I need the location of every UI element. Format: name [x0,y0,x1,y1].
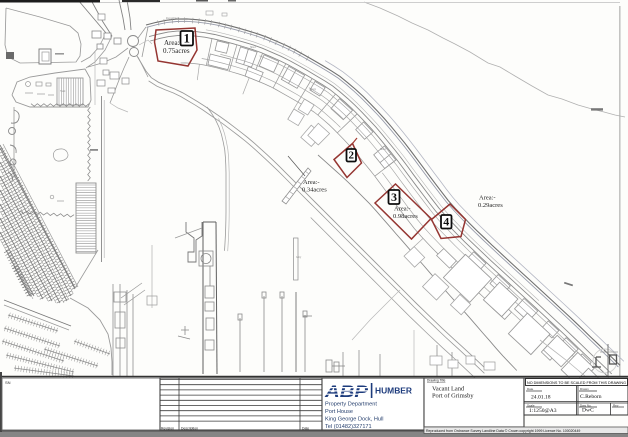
svg-text:Reproduced from Ordnance Surve: Reproduced from Ordnance Survey Landline… [426,429,580,433]
svg-text:2: 2 [349,150,355,162]
svg-text:Jetty: Jetty [296,256,302,259]
svg-text:Date: Date [527,387,534,391]
svg-text:Drawn: Drawn [580,387,589,391]
svg-text:Area:-: Area:- [164,39,183,47]
svg-text:Shed: Shed [250,46,256,49]
svg-text:Vacant Land: Vacant Land [432,386,465,393]
svg-text:4: 4 [443,215,449,229]
svg-text:Tel (01482)327171: Tel (01482)327171 [325,424,372,430]
svg-text:C.Reborn: C.Reborn [580,394,602,400]
svg-text:1: 1 [184,31,191,46]
svg-text:24.01.18: 24.01.18 [531,395,551,401]
svg-text:Area:-: Area:- [479,195,496,202]
svg-text:Revision: Revision [161,427,174,431]
svg-text:SN: SN [5,380,11,385]
svg-text:Quay: Quay [310,88,317,91]
svg-text:Port House: Port House [325,409,353,415]
svg-text:0.34acres: 0.34acres [302,187,327,194]
svg-text:Area:-: Area:- [394,206,411,213]
svg-text:0.75acres: 0.75acres [163,47,190,55]
svg-text:NO DIMENSIONS TO BE SCALED FRO: NO DIMENSIONS TO BE SCALED FROM THIS DRA… [527,380,626,385]
svg-text:Drawing Title: Drawing Title [427,379,446,383]
svg-text:HUMBER: HUMBER [375,387,412,396]
svg-text:0.98acres: 0.98acres [393,213,418,220]
svg-text:King George Dock, Hull: King George Dock, Hull [325,417,383,423]
svg-text:Description: Description [181,427,198,431]
svg-text:Port of Grimsby: Port of Grimsby [432,393,474,400]
svg-text:Property Department: Property Department [325,402,377,408]
svg-text:Date: Date [302,427,309,431]
svg-text:DwC: DwC [582,408,594,414]
svg-text:0.29acres: 0.29acres [478,202,503,209]
svg-text:Royal Dock: Royal Dock [166,17,180,20]
svg-text:Area:-: Area:- [303,179,320,186]
svg-text:1:1250@A3: 1:1250@A3 [529,408,557,414]
svg-text:Shed: Shed [380,148,386,151]
svg-text:3: 3 [391,190,397,204]
svg-text:Yard: Yard [60,90,66,93]
